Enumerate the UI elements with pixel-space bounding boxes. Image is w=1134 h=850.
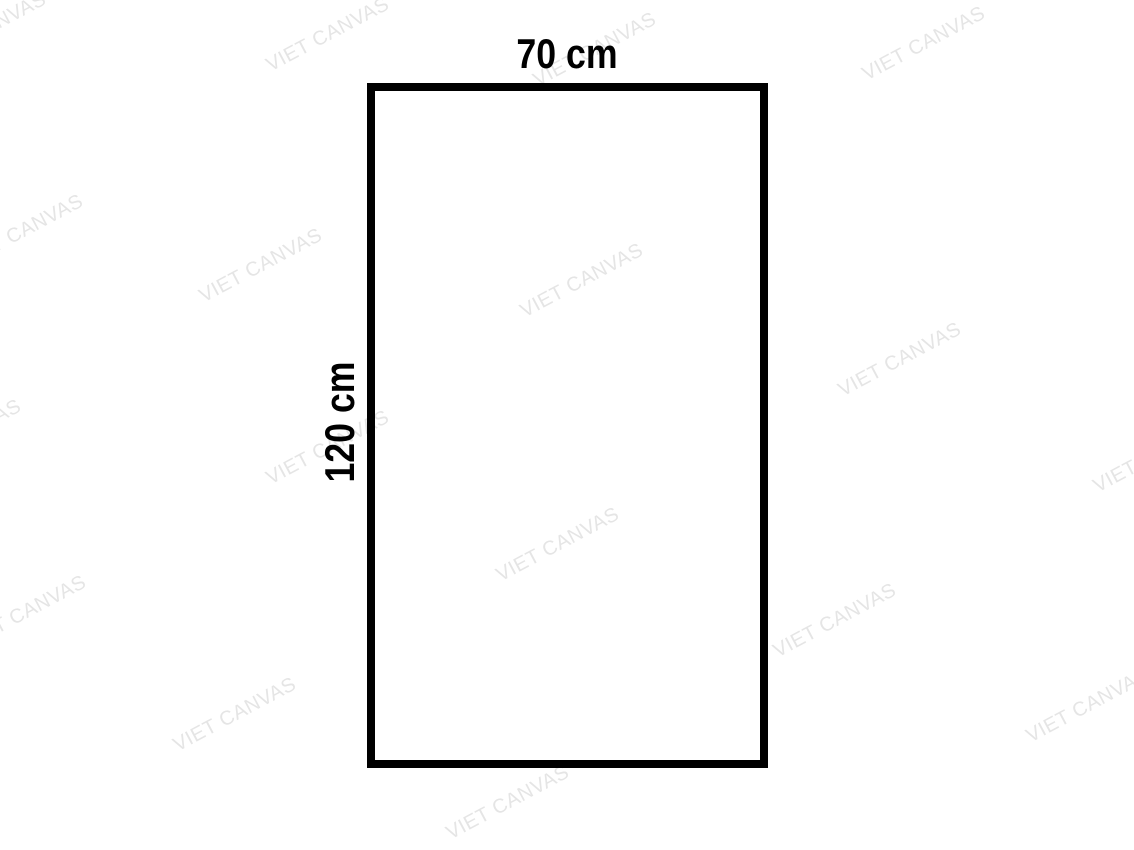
watermark-text: VIET CANVAS [0,190,87,274]
width-dimension-label: 70 cm [516,33,617,75]
watermark-text: VIET CANVAS [170,673,301,757]
watermark-text: VIET CANVAS [0,571,90,655]
canvas-outline [367,83,768,768]
watermark-text: VIET CANVAS [835,318,966,402]
watermark-text: VIET CANVAS [443,761,574,845]
watermark-text: VIET CANVAS [263,0,394,77]
watermark-text: VIET CANVAS [0,0,50,72]
watermark-text: VIET CANVAS [196,224,327,308]
watermark-text: VIET CANVAS [859,2,990,86]
height-dimension-label: 120 cm [319,361,361,482]
watermark-text: VIET CANVAS [0,395,25,479]
watermark-text: VIET CANVAS [1023,664,1134,748]
product-size-mockup: VIET CANVASVIET CANVASVIET CANVASVIET CA… [0,0,1134,850]
watermark-text: VIET CANVAS [1090,414,1134,498]
watermark-text: VIET CANVAS [770,579,901,663]
